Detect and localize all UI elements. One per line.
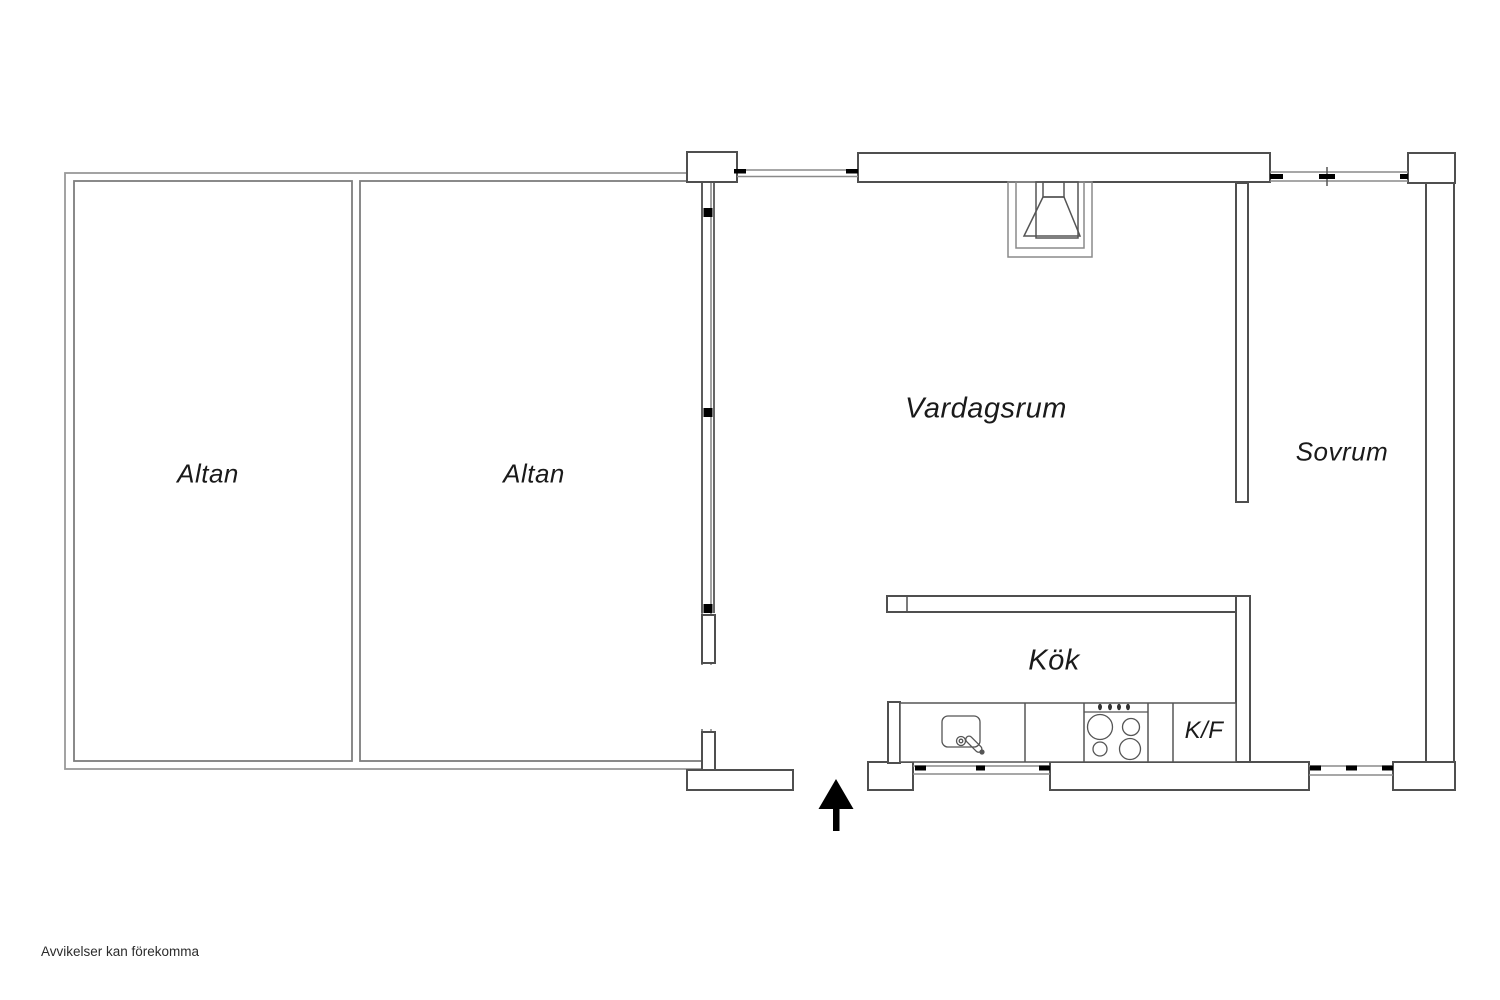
floor-plan-page: Altan Altan Vardagsrum Sovrum Kök K/F Av…: [0, 0, 1500, 1000]
window-wall: [702, 182, 714, 613]
disclaimer-text: Avvikelser kan förekomma: [41, 944, 199, 959]
window-ticks: [734, 169, 1408, 771]
terrace-outer-outline: [65, 173, 711, 769]
floor-plan-drawing: [0, 0, 1500, 1000]
room-label-vardagsrum: Vardagsrum: [905, 393, 1067, 426]
north-arrow-icon: [819, 779, 854, 831]
fridge-freezer-label: K/F: [1185, 717, 1224, 745]
room-label-altan-1: Altan: [177, 459, 239, 490]
room-label-kok: Kök: [1028, 645, 1079, 678]
fireplace-icon: [1008, 182, 1092, 257]
terrace-door-gap: [692, 665, 722, 729]
room-label-sovrum: Sovrum: [1296, 437, 1389, 468]
terrace-inner-outlines: [74, 181, 702, 761]
window-lines: [737, 170, 1408, 775]
room-label-altan-2: Altan: [503, 459, 565, 490]
